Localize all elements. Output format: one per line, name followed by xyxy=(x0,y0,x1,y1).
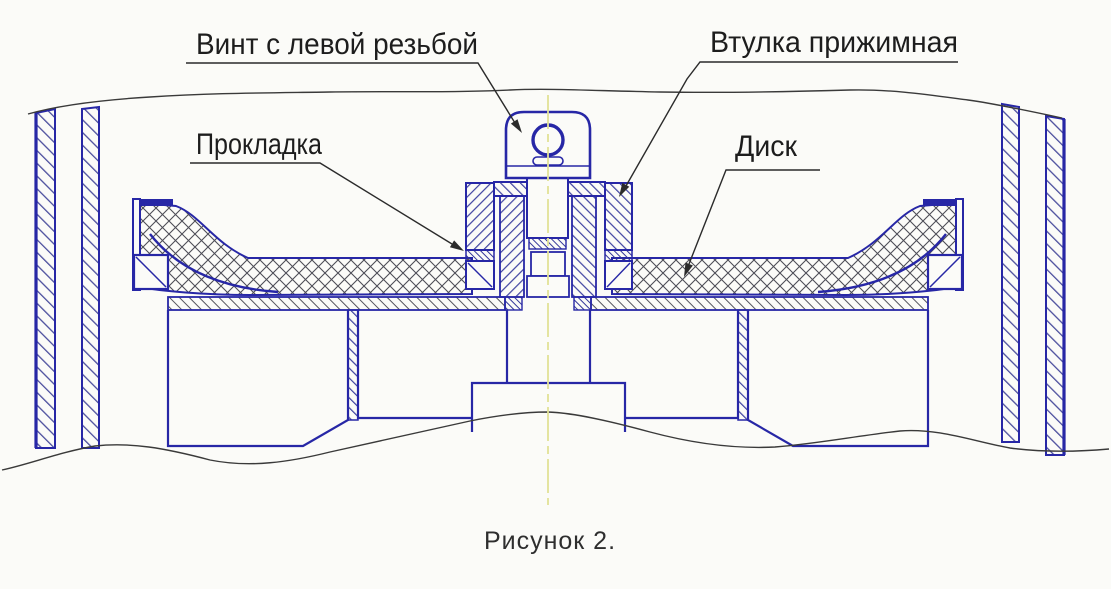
hub-key-left xyxy=(505,297,522,310)
sleeve-block-left xyxy=(466,183,494,250)
gasket-left xyxy=(466,250,494,261)
support-plate-left xyxy=(168,297,505,310)
support-rib-left xyxy=(348,310,358,420)
sleeve-bore-wall-left xyxy=(500,196,524,297)
callout-sleeve-text: Втулка прижимная xyxy=(710,26,958,59)
wall-strip-outer-right xyxy=(1046,116,1064,455)
hub-key-right xyxy=(574,297,591,310)
support-rib-right xyxy=(738,310,748,420)
sleeve-block-right xyxy=(605,183,632,250)
support-plate-right xyxy=(591,297,928,310)
callout-disk-text: Диск xyxy=(735,130,798,163)
wall-strip-outer-left xyxy=(36,109,55,448)
callout-gasket-text: Прокладка xyxy=(196,128,322,161)
callout-screw-text: Винт с левой резьбой xyxy=(196,28,478,61)
technical-drawing: Винт с левой резьбой Втулка прижимная Пр… xyxy=(0,0,1111,589)
sleeve-flange-hatch-right xyxy=(565,182,605,196)
sleeve-flange-hatch-left xyxy=(494,182,527,196)
figure-canvas: Винт с левой резьбой Втулка прижимная Пр… xyxy=(0,0,1111,589)
figure-caption: Рисунок 2. xyxy=(484,527,616,555)
sleeve-bore-wall-right xyxy=(572,196,596,297)
wall-strip-inner-right xyxy=(1002,104,1019,442)
gasket-right xyxy=(605,250,632,261)
wall-strip-inner-left xyxy=(82,107,99,448)
